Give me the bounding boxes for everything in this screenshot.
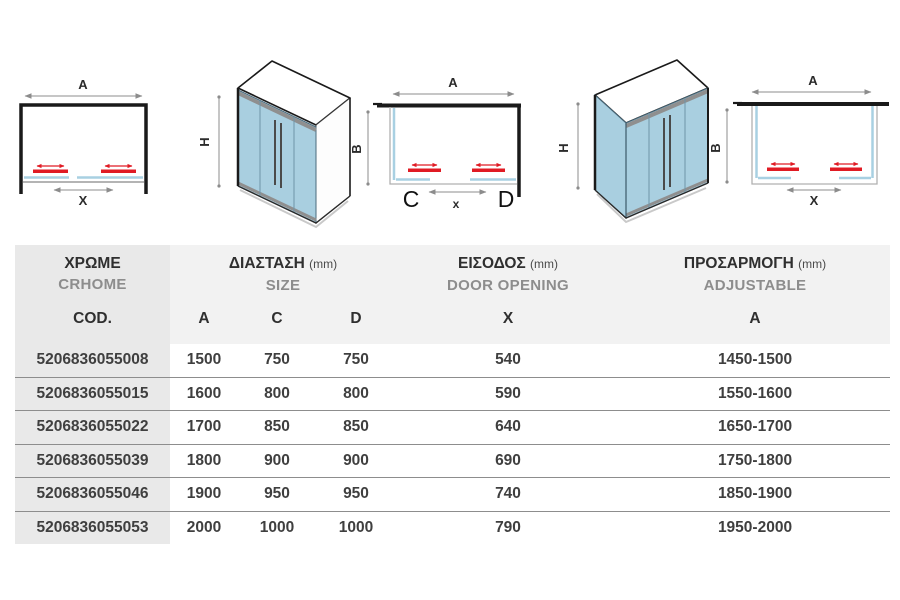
opening-x-cell: 640 [396, 411, 620, 444]
size-d-cell: 850 [316, 411, 396, 444]
glass-line [757, 106, 873, 178]
subcolumn-adj-a: A [620, 296, 890, 344]
column-subtitle: CRHOME [58, 274, 126, 295]
size-d-cell: 750 [316, 344, 396, 377]
size-a-cell: 1800 [170, 445, 238, 478]
cod-cell: 5206836055022 [15, 411, 170, 444]
subcolumn-d: D [316, 296, 396, 344]
size-c-cell: 800 [238, 378, 316, 411]
sliding-door-bar [101, 170, 136, 174]
column-title: ΕΙΣΟΔΟΣ (mm) [458, 253, 558, 275]
sliding-door-bar [472, 169, 505, 173]
sliding-door-bar [830, 168, 862, 172]
opening-x-cell: 690 [396, 445, 620, 478]
size-d-cell: 1000 [316, 512, 396, 545]
tray-outline [752, 106, 877, 184]
table-body: 5206836055008 1500 750 750 540 1450-1500… [15, 344, 890, 544]
height-dim-label: H [197, 137, 212, 146]
size-a-cell: 2000 [170, 512, 238, 545]
size-c-cell: 850 [238, 411, 316, 444]
size-d-cell: 900 [316, 445, 396, 478]
column-subtitle: ADJUSTABLE [704, 275, 807, 296]
unit-label: (mm) [798, 257, 826, 271]
table-row: 5206836055022 1700 850 850 640 1650-1700 [15, 410, 890, 444]
opening-dim-label: X [79, 193, 88, 208]
column-title: ΔΙΑΣΤΑΣΗ (mm) [229, 253, 337, 275]
adjustable-cell: 1550-1600 [620, 378, 890, 411]
size-c-cell: 750 [238, 344, 316, 377]
column-header-color: ΧΡΩΜΕ CRHOME COD. [15, 245, 170, 344]
table-header: ΧΡΩΜΕ CRHOME COD. ΔΙΑΣΤΑΣΗ (mm) SIZE ΕΙΣ… [15, 245, 890, 344]
size-c-cell: 1000 [238, 512, 316, 545]
depth-dim-label: B [708, 143, 723, 152]
cod-cell: 5206836055046 [15, 478, 170, 511]
width-dim-label: A [78, 77, 88, 92]
height-dim-label: H [556, 143, 571, 152]
opening-dim-label: x [453, 197, 460, 211]
cod-cell: 5206836055039 [15, 445, 170, 478]
cod-cell: 5206836055053 [15, 512, 170, 545]
column-header-adjustable: ΠΡΟΣΑΡΜΟΓΗ (mm) ADJUSTABLE [620, 245, 890, 296]
diagram-plan-left: A X [21, 77, 146, 208]
column-header-door-opening: ΕΙΣΟΔΟΣ (mm) DOOR OPENING [396, 245, 620, 296]
column-subtitle: SIZE [266, 275, 301, 296]
adjustable-cell: 1650-1700 [620, 411, 890, 444]
size-d-cell: 800 [316, 378, 396, 411]
fixed-panel-left-label: C [403, 186, 420, 212]
adjustable-cell: 1750-1800 [620, 445, 890, 478]
size-a-cell: 1700 [170, 411, 238, 444]
size-a-cell: 1600 [170, 378, 238, 411]
diagram-iso-front: H B [197, 61, 382, 227]
table-row: 5206836055039 1800 900 900 690 1750-1800 [15, 444, 890, 478]
diagram-plan-right: A X [737, 73, 889, 208]
subcolumn-c: C [238, 296, 316, 344]
sliding-door-bar [767, 168, 799, 172]
opening-dim-label: X [810, 193, 819, 208]
column-subtitle: DOOR OPENING [447, 275, 569, 296]
adjustable-cell: 1850-1900 [620, 478, 890, 511]
cod-cell: 5206836055008 [15, 344, 170, 377]
frame-outline [21, 105, 146, 194]
spec-table: ΧΡΩΜΕ CRHOME COD. ΔΙΑΣΤΑΣΗ (mm) SIZE ΕΙΣ… [15, 245, 890, 544]
adjustable-cell: 1950-2000 [620, 512, 890, 545]
column-title: ΠΡΟΣΑΡΜΟΓΗ (mm) [684, 253, 826, 275]
size-c-cell: 900 [238, 445, 316, 478]
unit-label: (mm) [530, 257, 558, 271]
diagram-iso-corner: H B [556, 60, 742, 222]
subcolumn-x: X [396, 296, 620, 344]
opening-x-cell: 740 [396, 478, 620, 511]
width-dim-label: A [808, 73, 818, 88]
subcolumn-a: A [170, 296, 238, 344]
size-a-cell: 1500 [170, 344, 238, 377]
depth-dim-label: B [349, 144, 364, 153]
size-d-cell: 950 [316, 478, 396, 511]
opening-x-cell: 790 [396, 512, 620, 545]
diagram-plan-center: A C D x [377, 75, 521, 212]
size-c-cell: 950 [238, 478, 316, 511]
fixed-panel-right-label: D [498, 186, 515, 212]
spec-sheet: A X [0, 0, 900, 600]
opening-x-cell: 590 [396, 378, 620, 411]
unit-label: (mm) [309, 257, 337, 271]
table-row: 5206836055015 1600 800 800 590 1550-1600 [15, 377, 890, 411]
width-dim-label: A [448, 75, 458, 90]
table-row: 5206836055008 1500 750 750 540 1450-1500 [15, 344, 890, 377]
table-row: 5206836055053 2000 1000 1000 790 1950-20… [15, 511, 890, 545]
column-header-size: ΔΙΑΣΤΑΣΗ (mm) SIZE [170, 245, 396, 296]
column-title: ΧΡΩΜΕ [64, 253, 120, 274]
cod-cell: 5206836055015 [15, 378, 170, 411]
sliding-door-bar [33, 170, 68, 174]
adjustable-cell: 1450-1500 [620, 344, 890, 377]
subcolumn-cod: COD. [73, 310, 112, 328]
technical-diagrams: A X [0, 0, 900, 245]
sliding-door-bar [408, 169, 441, 173]
table-row: 5206836055046 1900 950 950 740 1850-1900 [15, 477, 890, 511]
tray-outline [390, 107, 517, 184]
size-a-cell: 1900 [170, 478, 238, 511]
opening-x-cell: 540 [396, 344, 620, 377]
